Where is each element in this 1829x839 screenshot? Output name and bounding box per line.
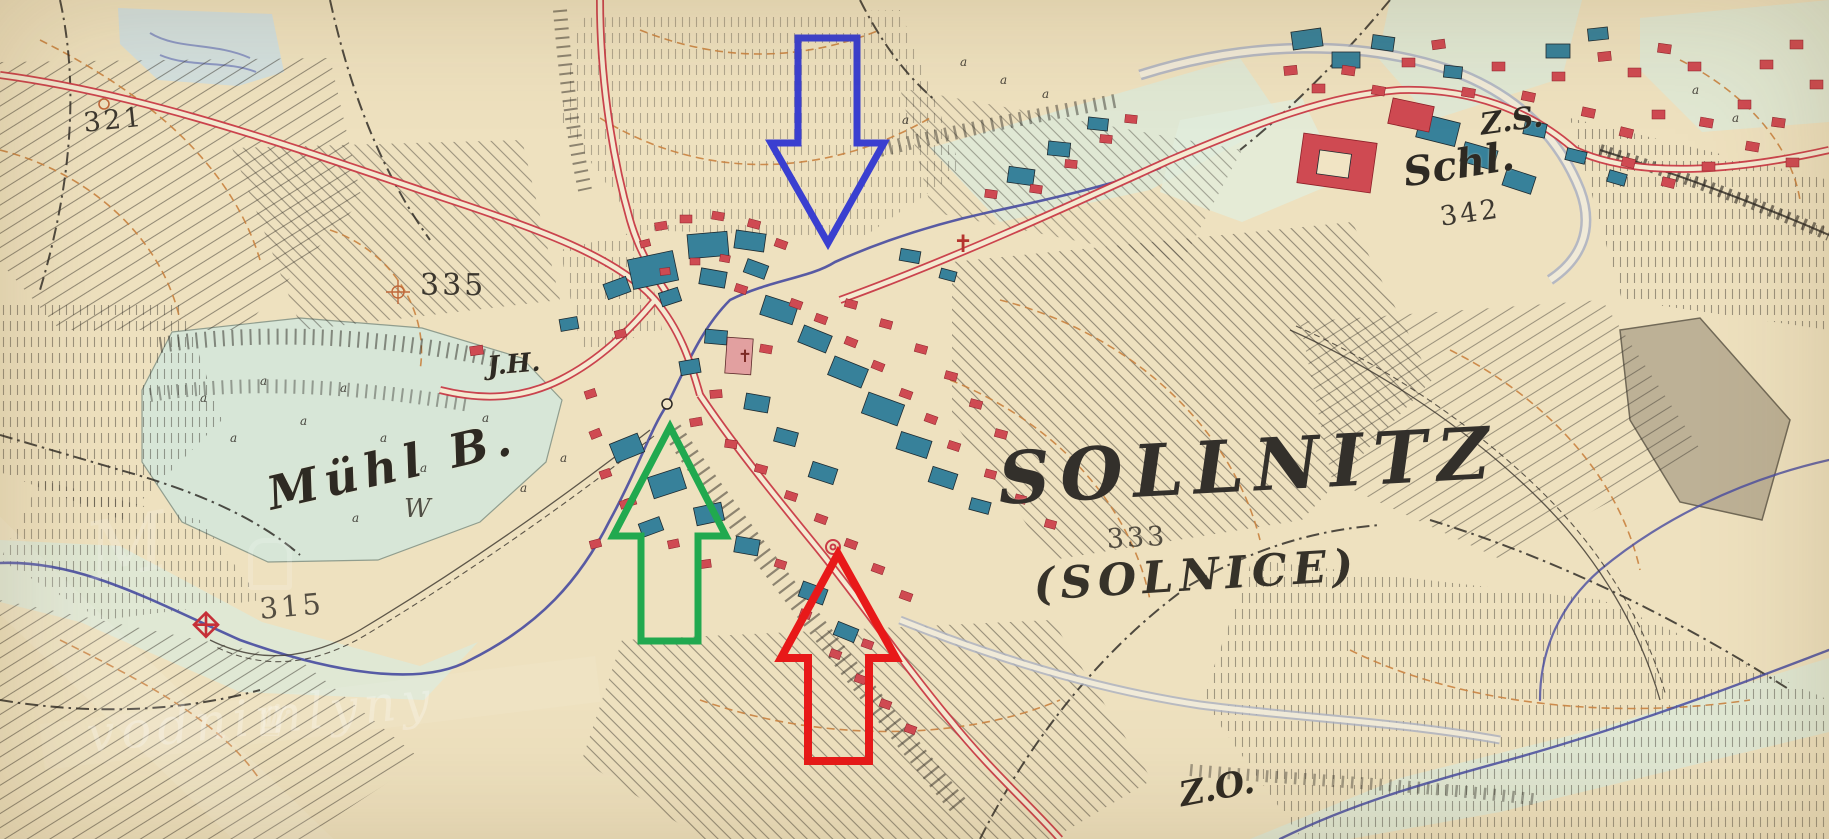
svg-text:a: a [1000,73,1007,87]
svg-text:a: a [230,431,237,445]
map-canvas[interactable]: aaa aaa aaa aaa aaa aaa ✝ ✝ 321 335 J.H.… [0,0,1829,839]
svg-text:a: a [520,481,527,495]
svg-text:a: a [260,374,267,388]
label-w: W [404,494,431,524]
junction-circle [662,399,672,409]
svg-text:a: a [200,391,207,405]
svg-text:a: a [352,511,359,525]
svg-text:a: a [960,55,967,69]
svg-text:a: a [1042,87,1049,101]
svg-text:a: a [300,414,307,428]
svg-text:a: a [1692,83,1699,97]
chapel-cross-icon: ✝ [953,230,973,258]
svg-text:a: a [340,381,347,395]
svg-text:a: a [902,113,909,127]
elevation-label-335: 335 [420,268,486,303]
church-cross-icon: ✝ [738,347,752,367]
label-jh: J.H. [486,347,541,382]
elevation-label-321: 321 [82,102,145,139]
elevation-label-315: 315 [258,586,325,625]
elevation-label-333: 333 [1106,521,1168,555]
svg-text:a: a [1732,111,1739,125]
svg-text:a: a [560,451,567,465]
